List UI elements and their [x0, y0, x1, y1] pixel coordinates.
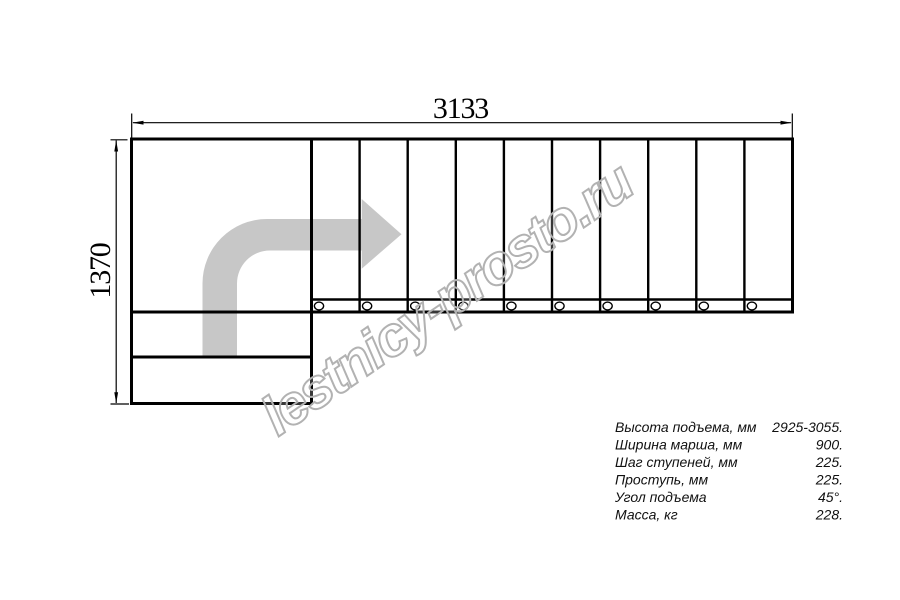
svg-text:228.: 228.	[815, 507, 843, 523]
svg-text:Ширина марша, мм: Ширина марша, мм	[615, 437, 743, 453]
svg-text:3133: 3133	[433, 92, 488, 125]
svg-text:Шаг ступеней, мм: Шаг ступеней, мм	[615, 454, 738, 470]
svg-text:Проступь, мм: Проступь, мм	[615, 472, 709, 488]
svg-text:2925-3055.: 2925-3055.	[771, 419, 843, 435]
svg-text:225.: 225.	[815, 472, 843, 488]
svg-text:45°.: 45°.	[818, 489, 843, 505]
svg-text:900.: 900.	[816, 437, 843, 453]
svg-text:225.: 225.	[815, 454, 843, 470]
svg-text:Масса, кг: Масса, кг	[615, 507, 678, 523]
svg-text:Высота подъема, мм: Высота подъема, мм	[615, 419, 757, 435]
svg-text:Угол подъема: Угол подъема	[614, 489, 707, 505]
svg-text:1370: 1370	[84, 243, 117, 298]
